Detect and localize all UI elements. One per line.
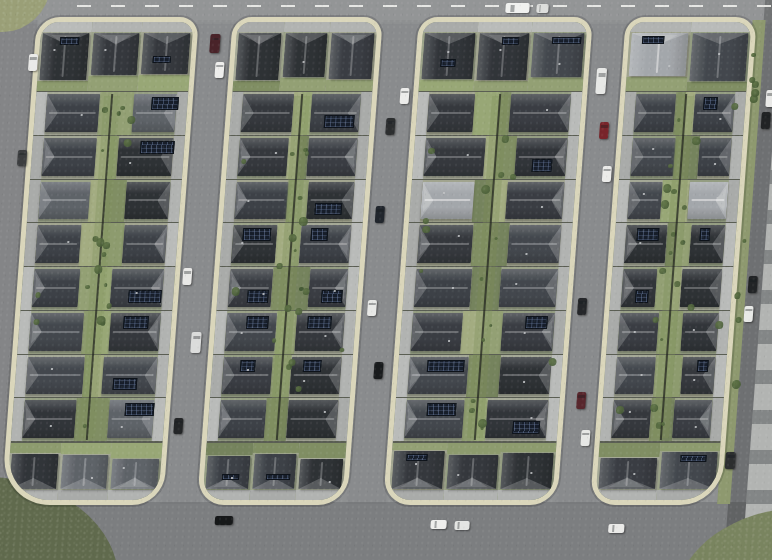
roof-vent	[714, 163, 716, 165]
house	[299, 92, 372, 135]
car	[430, 520, 447, 529]
driveway	[477, 22, 532, 32]
hip-facet	[285, 33, 328, 44]
hip-facet	[614, 357, 629, 395]
roof-vent	[275, 152, 277, 154]
backyard	[111, 443, 163, 458]
backyard	[625, 77, 687, 91]
solar-panel	[680, 455, 706, 462]
house-roof	[141, 33, 191, 74]
house-roof	[659, 452, 718, 489]
house	[498, 443, 557, 500]
driveway	[91, 22, 142, 32]
house-roof	[306, 138, 358, 176]
car	[608, 524, 625, 533]
roof-vent	[49, 425, 51, 427]
house	[36, 22, 92, 91]
roof-vent	[695, 426, 697, 428]
solar-panel	[440, 59, 456, 67]
house-roof	[630, 138, 676, 176]
house	[57, 443, 112, 500]
car-windshield	[184, 271, 190, 273]
roof-vent	[629, 411, 631, 413]
driveway	[283, 22, 330, 32]
hip-facet	[35, 225, 50, 263]
house-roof	[299, 459, 344, 489]
house-roof	[423, 138, 486, 176]
roof-vent	[633, 473, 635, 475]
hip-facet	[224, 313, 239, 351]
roof-vent	[526, 253, 528, 255]
house	[87, 398, 166, 441]
car	[748, 276, 758, 293]
backyard	[659, 443, 720, 451]
car	[215, 516, 234, 525]
house-roof	[44, 94, 100, 132]
house	[87, 22, 143, 91]
roof-vent	[121, 426, 123, 428]
house-roof	[614, 357, 656, 395]
house-roof	[124, 182, 171, 220]
solar-panel	[307, 316, 332, 329]
roof-vent	[634, 331, 636, 333]
car-windshield	[746, 309, 752, 311]
garage-gable	[609, 477, 646, 487]
roof-vent	[303, 380, 305, 382]
hip-facet	[38, 182, 53, 220]
house	[388, 443, 447, 500]
shrub	[339, 348, 344, 353]
house-roof	[689, 33, 749, 81]
house-roof	[672, 400, 713, 438]
solar-panel	[321, 290, 342, 303]
house	[90, 355, 169, 398]
house-roof	[624, 225, 668, 263]
shrub	[299, 217, 308, 225]
house	[27, 180, 106, 223]
car	[182, 268, 192, 285]
car	[725, 452, 736, 469]
house	[17, 311, 96, 354]
house-roof	[421, 33, 475, 79]
solar-panel	[151, 97, 179, 110]
roof-vent	[51, 368, 53, 370]
shrub	[295, 308, 302, 315]
backyard	[253, 443, 300, 453]
hip-facet	[617, 313, 632, 351]
roof-vent	[640, 374, 642, 376]
car-windshield	[767, 93, 772, 95]
house-roof	[627, 182, 663, 220]
backyard	[446, 443, 501, 454]
backyard	[87, 76, 139, 91]
bottom-house-row	[595, 442, 720, 500]
solar-panel	[427, 403, 457, 416]
house-roof	[235, 33, 281, 80]
house-roof	[32, 269, 81, 307]
top-house-row	[418, 22, 587, 92]
house	[249, 443, 300, 500]
house-roof	[111, 459, 160, 489]
roof-vent	[67, 241, 69, 243]
bottom-house-row	[6, 442, 162, 500]
house	[412, 136, 497, 179]
roof-vent	[523, 381, 525, 383]
roof-vent	[652, 148, 654, 150]
backyard	[599, 443, 661, 457]
hip-facet	[25, 357, 40, 395]
house-roof	[531, 33, 585, 77]
solar-panel	[635, 290, 648, 303]
driveway	[630, 22, 691, 32]
house	[14, 355, 93, 398]
roof-vent	[448, 51, 450, 53]
house-roof	[22, 400, 77, 438]
house	[484, 267, 569, 310]
roof-vent	[241, 332, 243, 334]
house	[296, 443, 347, 500]
shrub	[478, 419, 487, 428]
backyard	[232, 81, 279, 91]
backyard	[473, 81, 528, 91]
house-roof	[90, 33, 140, 75]
driveway	[690, 22, 751, 32]
house	[656, 443, 721, 500]
car-windshield	[369, 303, 375, 305]
house	[595, 443, 660, 500]
driveway	[108, 490, 159, 500]
solar-panel	[552, 37, 581, 45]
house-roof	[101, 357, 158, 395]
house	[418, 22, 478, 91]
road-centerline-dashes	[77, 5, 772, 7]
roof-vent	[720, 118, 722, 120]
house	[109, 92, 188, 135]
shrub	[481, 185, 491, 194]
shrub	[715, 321, 723, 329]
solar-panel	[127, 290, 161, 303]
car-windshield	[579, 301, 585, 303]
driveway	[443, 490, 498, 500]
house-roof	[131, 94, 177, 132]
roof-vent	[452, 287, 454, 289]
house	[443, 443, 502, 500]
car-windshield	[212, 38, 219, 41]
hip-facet	[630, 138, 645, 176]
house-roof	[252, 454, 297, 489]
roof-vent	[104, 49, 106, 51]
solar-panel	[525, 316, 548, 329]
backyard	[206, 443, 254, 455]
house-roof	[224, 313, 277, 351]
house	[279, 22, 331, 91]
driveway	[656, 490, 717, 500]
house	[293, 180, 366, 223]
car	[399, 88, 409, 104]
car	[209, 34, 220, 53]
car	[765, 90, 772, 107]
house-roof	[38, 182, 91, 220]
house-roof	[110, 269, 165, 307]
house	[277, 398, 350, 441]
house-roof	[60, 455, 109, 489]
roof-vent	[448, 340, 450, 342]
house	[108, 443, 163, 500]
car	[454, 521, 470, 530]
backyard	[299, 443, 347, 458]
hip-facet	[659, 478, 716, 489]
house-roof	[25, 357, 85, 395]
car	[28, 54, 38, 71]
car-windshield	[578, 395, 584, 397]
roof-vent	[241, 242, 243, 244]
car-windshield	[582, 433, 588, 435]
house-roof	[39, 33, 89, 80]
hip-facet	[240, 94, 255, 132]
car	[375, 206, 385, 223]
top-house-row	[232, 22, 377, 92]
car-windshield	[598, 73, 605, 77]
roof-vent	[81, 114, 83, 116]
hip-facet	[633, 94, 648, 132]
roof-vent	[53, 49, 55, 51]
solar-panel	[697, 360, 708, 373]
shrub	[85, 285, 90, 289]
house-roof	[501, 453, 554, 489]
car-windshield	[375, 365, 381, 367]
top-house-row	[36, 22, 193, 92]
hip-facet	[501, 478, 552, 489]
backyard	[418, 80, 473, 91]
solar-panel	[637, 228, 660, 241]
solar-panel	[311, 228, 329, 241]
house	[24, 223, 103, 266]
house	[497, 92, 582, 135]
house-roof	[294, 313, 345, 351]
top-house-row	[625, 22, 751, 92]
roof-vent	[717, 197, 719, 199]
hip-facet	[414, 269, 429, 307]
car	[761, 112, 771, 129]
house	[396, 355, 481, 398]
roof-vent	[531, 472, 533, 474]
house	[473, 22, 533, 91]
house-roof	[633, 94, 676, 132]
house	[106, 136, 185, 179]
road-bottom-road	[0, 502, 772, 560]
car-windshield	[193, 336, 200, 339]
house-roof	[680, 269, 723, 307]
house-roof	[306, 182, 355, 220]
driveway	[237, 22, 284, 32]
roof-vent	[123, 467, 125, 469]
driveway	[423, 22, 478, 32]
car	[505, 3, 530, 13]
house	[33, 92, 112, 135]
house-roof	[687, 182, 729, 220]
house-roof	[299, 225, 352, 263]
backyard	[686, 82, 747, 91]
garage-gable	[455, 477, 488, 487]
house-roof	[446, 455, 499, 489]
driveway	[388, 490, 443, 500]
roof-vent	[693, 329, 695, 331]
house	[415, 92, 500, 135]
house	[481, 311, 566, 354]
roof-vent	[247, 200, 249, 202]
car-windshield	[763, 115, 769, 117]
driveway	[330, 22, 377, 32]
roof-vent	[499, 49, 501, 51]
house-roof	[329, 33, 375, 79]
house	[290, 223, 363, 266]
car-windshield	[30, 57, 36, 59]
car	[577, 298, 587, 315]
solar-panel	[123, 316, 149, 329]
solar-panel	[699, 228, 710, 241]
car-windshield	[219, 517, 222, 523]
solar-panel	[125, 403, 155, 416]
house-roof	[308, 269, 349, 307]
house	[11, 398, 90, 441]
roof-vent	[531, 417, 533, 419]
hip-facet	[44, 94, 59, 132]
roof-vent	[458, 235, 460, 237]
car	[190, 332, 202, 353]
backyard	[279, 78, 327, 91]
hip-facet	[221, 357, 236, 395]
roof-vent	[639, 242, 641, 244]
car-windshield	[601, 125, 607, 127]
house-roof	[237, 138, 289, 176]
car-windshield	[604, 169, 610, 171]
house-roof	[391, 451, 444, 489]
roof-vent	[524, 332, 526, 334]
roof-vent	[91, 477, 93, 479]
solar-panel	[112, 378, 137, 391]
roof-vent	[558, 63, 560, 65]
car	[576, 392, 586, 409]
solar-panel	[513, 421, 540, 434]
house-roof	[410, 313, 463, 351]
hip-facet	[424, 33, 475, 44]
driveway	[532, 22, 587, 32]
house	[286, 267, 359, 310]
roof-vent	[302, 61, 304, 63]
house-roof	[508, 94, 571, 132]
house	[409, 180, 494, 223]
roof-vent	[324, 411, 326, 413]
house	[402, 267, 487, 310]
house-roof	[420, 182, 475, 220]
car-windshield	[458, 522, 461, 528]
house-roof	[286, 400, 339, 438]
house-roof	[621, 269, 658, 307]
solar-panel	[152, 56, 171, 63]
roof-vent	[457, 474, 459, 476]
house-roof	[231, 225, 278, 263]
solar-panel	[324, 115, 355, 128]
house-roof	[680, 313, 719, 351]
car-windshield	[402, 91, 408, 93]
house	[30, 136, 109, 179]
aerial-photo	[0, 0, 772, 560]
house	[283, 311, 356, 354]
house	[686, 22, 752, 91]
shrub	[687, 304, 694, 311]
backyard	[138, 75, 190, 91]
house	[103, 180, 182, 223]
garage-gable	[101, 35, 132, 45]
house	[625, 22, 691, 91]
solar-panel	[315, 203, 342, 216]
house	[232, 22, 284, 91]
house	[138, 22, 194, 91]
house-roof	[697, 138, 732, 176]
car-windshield	[511, 5, 515, 12]
shrub	[277, 263, 283, 268]
house-roof	[414, 269, 473, 307]
hip-facet	[410, 313, 425, 351]
car	[536, 4, 549, 13]
backyard	[60, 443, 111, 454]
roof-vent	[263, 293, 265, 295]
roof-vent	[693, 379, 695, 381]
garage-gable	[400, 477, 433, 487]
roof-vent	[515, 283, 517, 285]
solar-panel	[427, 360, 465, 373]
solar-panel	[531, 159, 552, 172]
car-windshield	[217, 65, 223, 67]
car-windshield	[612, 525, 615, 531]
solar-panel	[703, 97, 717, 110]
solar-panel	[303, 360, 321, 373]
house	[202, 443, 253, 500]
house-roof	[598, 458, 657, 489]
house-roof	[107, 400, 155, 438]
house-roof	[108, 313, 161, 351]
backyard	[36, 81, 87, 91]
house-roof	[234, 182, 289, 220]
house-roof	[476, 33, 530, 80]
solar-panel	[642, 36, 664, 44]
backyard	[528, 78, 584, 91]
solar-panel	[247, 290, 269, 303]
backyard	[501, 443, 556, 452]
roof-vent	[135, 292, 137, 294]
house	[406, 223, 491, 266]
backyard	[326, 80, 373, 91]
house-roof	[221, 357, 273, 395]
hip-facet	[627, 182, 642, 220]
bottom-house-row	[202, 442, 346, 500]
roof-vent	[324, 335, 326, 337]
house	[393, 398, 478, 441]
car-windshield	[434, 521, 437, 527]
house-roof	[499, 269, 559, 307]
car-windshield	[539, 5, 541, 11]
solar-panel	[406, 454, 427, 461]
roof-vent	[546, 109, 548, 111]
house	[326, 22, 378, 91]
roof-vent	[231, 477, 233, 479]
house-roof	[505, 182, 565, 220]
house	[491, 180, 576, 223]
roof-vent	[247, 369, 249, 371]
garage-gable	[119, 477, 150, 487]
garage-gable	[245, 35, 273, 45]
hip-facet	[299, 478, 342, 489]
